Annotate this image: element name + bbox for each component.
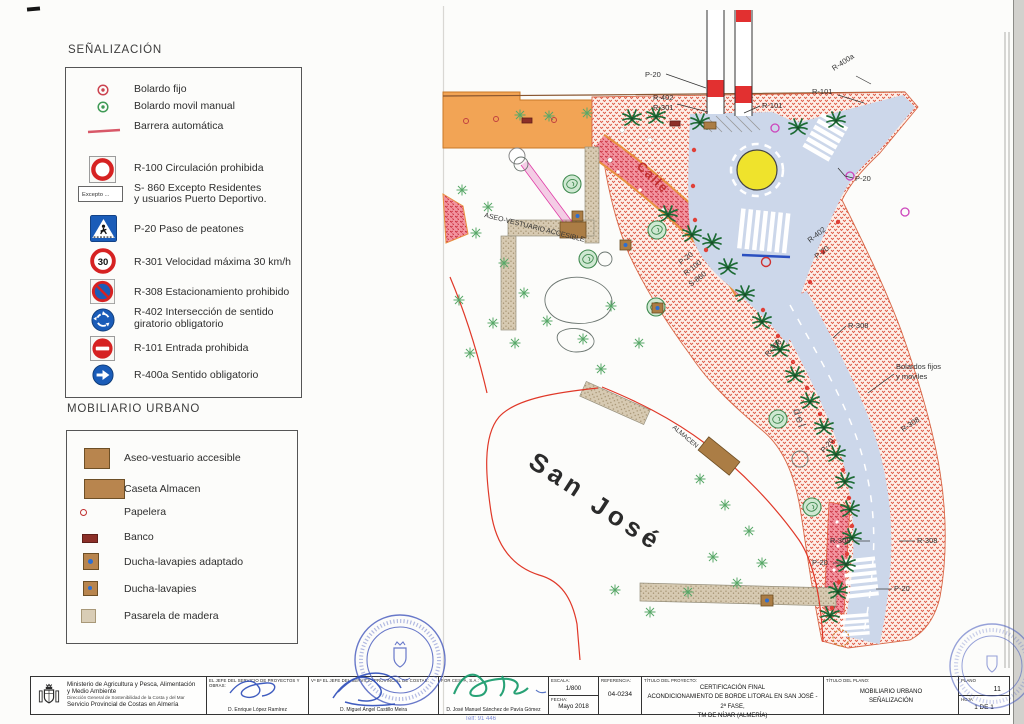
spain-coat-of-arms-icon — [38, 682, 60, 714]
automatic-barrier — [742, 255, 790, 267]
furniture-legend-title: MOBILIARIO URBANO — [67, 403, 200, 415]
map-label: R-400a — [830, 51, 856, 72]
fecha-value: Mayo 2018 — [549, 703, 598, 710]
map-label: P-20 — [819, 436, 836, 454]
proyecto-line: TM DE NÍJAR (ALMERÍA) — [644, 712, 821, 721]
cell-header: Vº Bº EL JEFE DEL SERVICIO PROVINCIAL DE… — [311, 678, 429, 683]
map-label: P-20 — [894, 584, 910, 593]
r-101-sign-icon — [90, 336, 115, 366]
sheet-border — [1005, 32, 1009, 668]
escala-value: 1/800 — [549, 685, 598, 692]
referencia-value: 04-0234 — [599, 691, 641, 698]
map-label: ALMACEN — [671, 424, 700, 450]
ministry-line: y Medio Ambiente — [67, 688, 205, 695]
cell-header: POR CESPA, S.A.: — [441, 678, 479, 683]
pasarela-madera-icon — [81, 609, 96, 623]
legend-label: Ducha-lavapies adaptado — [124, 556, 243, 568]
road-network — [688, 95, 915, 640]
map-label: P-20 — [645, 70, 661, 79]
barrera-automatica-icon — [86, 123, 122, 141]
signer-name: D. José Manuel Sánchez de Pavía Gómez — [439, 707, 548, 713]
map-label: R-402 — [653, 93, 673, 102]
r-402-sign-icon — [91, 308, 115, 337]
cespa-signature-cell: POR CESPA, S.A.: D. José Manuel Sánchez … — [438, 677, 548, 714]
map-label: P-20 — [813, 244, 831, 261]
map-label: del — [790, 407, 808, 430]
furniture-legend-box: Aseo-vestuario accesible Caseta Almacen … — [66, 430, 298, 644]
plano-label: TÍTULO DEL PLANO: — [826, 678, 869, 683]
referencia-cell: REFERENCIA: 04-0234 — [598, 677, 641, 714]
map-label: R-101 — [812, 87, 832, 96]
plano-title-cell: TÍTULO DEL PLANO: MOBILIARIO URBANO SEÑA… — [823, 677, 958, 714]
fecha-label: FECHA: — [551, 697, 567, 702]
legend-label: giratorio obligatorio — [134, 318, 223, 330]
star-trees — [454, 108, 768, 618]
map-label: R-308 — [763, 337, 784, 358]
legend-label: R-400a Sentido obligatorio — [134, 369, 258, 381]
scan-page-edge — [1014, 0, 1024, 724]
hoja-label: HOJA — [961, 697, 973, 702]
plano-line: SEÑALIZACIÓN — [826, 697, 956, 706]
legend-label: y usuarios Puerto Deportivo. — [134, 193, 266, 205]
hoja-value: 1 DE 1 — [959, 704, 1009, 711]
map-label: R-100 — [682, 258, 704, 278]
signer-name: D. Enrique López Ramírez — [207, 707, 308, 713]
map-label: P-20 — [677, 250, 695, 267]
proyecto-line: CERTIFICACIÓN FINAL — [644, 684, 821, 693]
ducha-lavapies-icon — [83, 581, 98, 596]
map-label: R-308 — [848, 321, 868, 330]
map-label: San — [524, 446, 593, 505]
legend-label: Barrera automática — [134, 120, 223, 132]
map-label: R-101 — [762, 101, 782, 110]
round-trees — [563, 175, 821, 516]
legend-label: Aseo-vestuario accesible — [124, 452, 241, 464]
map-label: Calle — [634, 158, 672, 196]
legend-label: Caseta Almacen — [124, 483, 200, 495]
legend-label: Bolardo fijo — [134, 83, 187, 95]
map-label: y moviles — [896, 372, 928, 381]
s-860-sign-icon: Excepto ... — [78, 186, 123, 202]
seafront-edge-line — [443, 92, 905, 96]
map-label: R-308 — [899, 415, 921, 434]
escala-label: ESCALA: — [551, 678, 570, 683]
signage-legend-title: SEÑALIZACIÓN — [68, 44, 162, 56]
map-label: R-308 — [917, 536, 937, 545]
referencia-label: REFERENCIA: — [601, 678, 631, 683]
proyecto-title-cell: TÍTULO DEL PROYECTO: CERTIFICACIÓN FINAL… — [641, 677, 823, 714]
parking-band — [824, 502, 850, 614]
p-20-sign-icon — [90, 215, 117, 247]
legend-label: R-101 Entrada prohibida — [134, 342, 248, 354]
plano-num-value: 11 — [959, 684, 1009, 693]
road-hatch — [700, 116, 760, 132]
ministry-line: Ministerio de Agricultura y Pesca, Alime… — [67, 681, 205, 688]
legend-label: R-402 Intersección de sentido — [134, 306, 274, 318]
accessible-walkway — [509, 148, 573, 227]
bolardo-movil-icon — [96, 100, 110, 119]
map-label: P-20 — [855, 174, 871, 183]
map-annotations: P-20R-402R-301R-101R-400aR-101P-20R-402P… — [484, 51, 942, 593]
map-label: Bolardos fijos — [896, 362, 941, 371]
legend-label: Banco — [124, 531, 154, 543]
map-label: S-860 — [687, 269, 708, 288]
roundabout — [731, 144, 783, 196]
annotation-leaders — [666, 74, 915, 589]
title-block: Ministerio de Agricultura y Pesca, Alime… — [30, 676, 1010, 715]
r-308-sign-icon — [90, 279, 115, 309]
ministry-cell: Ministerio de Agricultura y Pesca, Alime… — [31, 677, 206, 714]
r-400a-sign-icon — [92, 364, 114, 391]
plano-line: MOBILIARIO URBANO — [826, 688, 956, 697]
r-100-sign-icon — [89, 156, 116, 188]
promenade-strip — [443, 92, 592, 148]
aseo-vestuario-icon — [84, 448, 110, 469]
map-furniture — [464, 117, 850, 647]
legend-label: Bolardo movil manual — [134, 100, 235, 112]
escala-fecha-cell: ESCALA: 1/800 FECHA: Mayo 2018 — [548, 677, 598, 714]
map-label: R-402 — [806, 225, 828, 245]
cell-header: EL JEFE DEL SERVICIO DE PROYECTOS Y OBRA… — [209, 678, 308, 688]
map-label: José — [586, 489, 669, 557]
proyecto-label: TÍTULO DEL PROYECTO: — [644, 678, 697, 683]
calle-band — [443, 145, 747, 290]
legend-label: R-301 Velocidad máxima 30 km/h — [134, 256, 291, 268]
site-boundary-lines — [450, 277, 823, 660]
ministry-line: Servicio Provincial de Costas en Almería — [67, 701, 205, 708]
proyecto-line: ACONDICIONAMIENTO DE BORDE LITORAL EN SA… — [644, 693, 821, 712]
legend-label: P-20 Paso de peatones — [134, 223, 244, 235]
r-301-sign-icon: 30 — [90, 248, 116, 279]
map-label: R-301 — [653, 103, 673, 112]
movable-bollard-circles — [771, 124, 909, 216]
ministry-line: Dirección General de Sostenibilidad de l… — [67, 695, 205, 700]
map-label: R-308 — [830, 536, 850, 545]
plan-sheet: SEÑALIZACIÓN Bolardo fijo Bolardo movil … — [0, 0, 1024, 724]
signer-name: D. Miguel Ángel Castillo Meira — [309, 707, 438, 713]
legend-label: Ducha-lavapies — [124, 583, 196, 595]
plano-num-label: PLANO — [961, 678, 976, 683]
legend-label: R-308 Estacionamiento prohibido — [134, 286, 289, 298]
signage-legend-box: Bolardo fijo Bolardo movil manual Barrer… — [65, 67, 302, 398]
corner-mark — [27, 6, 40, 11]
stamp-phone-fragment: Telf: 91 446 — [465, 716, 497, 722]
bollard-dots — [691, 148, 854, 610]
wooden-boardwalk — [501, 147, 836, 606]
proyectos-signature-cell: EL JEFE DEL SERVICIO DE PROYECTOS Y OBRA… — [206, 677, 308, 714]
ducha-lavapies-adaptado-icon — [83, 553, 99, 570]
provincial-signature-cell: Vº Bº EL JEFE DEL SERVICIO PROVINCIAL DE… — [308, 677, 438, 714]
legend-label: R-100 Circulación prohibida — [134, 162, 264, 174]
caseta-almacen-icon — [84, 479, 125, 499]
legend-label: Papelera — [124, 506, 166, 518]
svg-text:30: 30 — [98, 257, 109, 268]
paved-plaza-hatch — [592, 92, 945, 648]
terrain-outlines — [514, 157, 808, 467]
entry-roads — [700, 10, 760, 132]
legend-label: Pasarela de madera — [124, 610, 219, 622]
plano-number-cell: PLANO 11 HOJA 1 DE 1 — [958, 677, 1009, 714]
crosswalks — [737, 112, 879, 636]
map-label: ASEO-VESTUARIO ACCESIBLE — [484, 212, 586, 244]
palm-trees — [623, 108, 861, 622]
papelera-icon — [80, 509, 87, 516]
banco-icon — [82, 534, 98, 543]
map-label: P-20 — [812, 558, 828, 567]
